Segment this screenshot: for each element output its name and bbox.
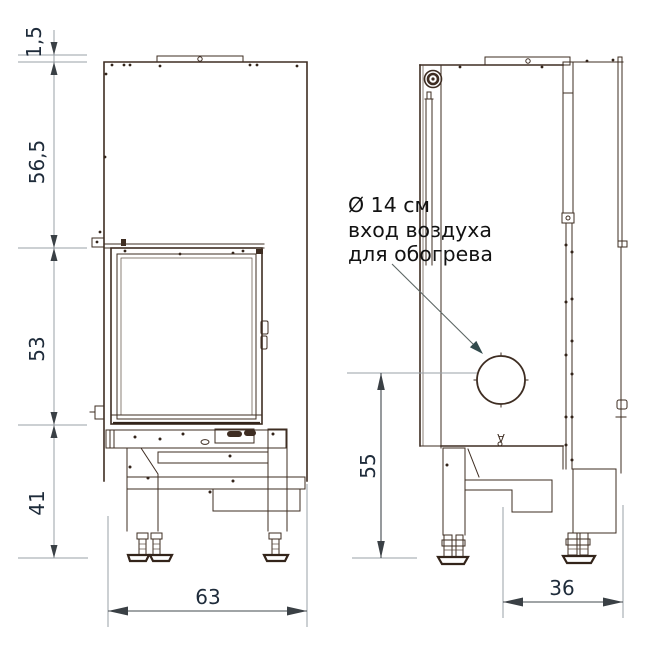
front-legs bbox=[127, 448, 305, 561]
dim-label-base-depth: 36 bbox=[549, 576, 574, 600]
side-base bbox=[438, 448, 616, 564]
front-top-plate-hole bbox=[198, 57, 202, 61]
annotation-line-3: для обогрева bbox=[348, 242, 493, 266]
front-door bbox=[111, 239, 263, 424]
side-top-plate bbox=[485, 57, 570, 65]
door-rail-channel bbox=[562, 62, 574, 469]
dim-base-depth: 36 bbox=[503, 505, 623, 618]
dim-label-upper-body: 56,5 bbox=[25, 140, 49, 185]
front-base-mechanism bbox=[106, 429, 287, 448]
technical-drawing-page: 1,5 56,5 53 41 bbox=[0, 0, 650, 650]
dim-label-front-width: 63 bbox=[195, 585, 220, 609]
front-view bbox=[90, 56, 307, 561]
fireplace-dimension-drawing: 1,5 56,5 53 41 bbox=[0, 0, 650, 650]
section-mark: ∀ bbox=[497, 432, 505, 445]
dim-label-top-plate: 1,5 bbox=[22, 26, 46, 58]
air-inlet-port bbox=[474, 353, 528, 407]
leader-line bbox=[392, 264, 474, 345]
annotation-line-1: Ø 14 см bbox=[348, 193, 430, 217]
dim-left-chain: 1,5 56,5 53 41 bbox=[18, 26, 88, 558]
side-view: ∀ bbox=[420, 57, 627, 564]
door-latch bbox=[90, 238, 104, 419]
dim-inlet-height: 55 bbox=[347, 373, 477, 558]
front-screw-dots bbox=[99, 64, 299, 256]
dim-label-door-height: 53 bbox=[25, 336, 49, 361]
front-body-outline bbox=[104, 62, 307, 481]
dim-label-inlet-height: 55 bbox=[356, 453, 380, 478]
door-pulley bbox=[425, 71, 442, 88]
annotation-line-2: вход воздуха bbox=[348, 218, 492, 242]
dim-label-base-height: 41 bbox=[25, 490, 49, 515]
